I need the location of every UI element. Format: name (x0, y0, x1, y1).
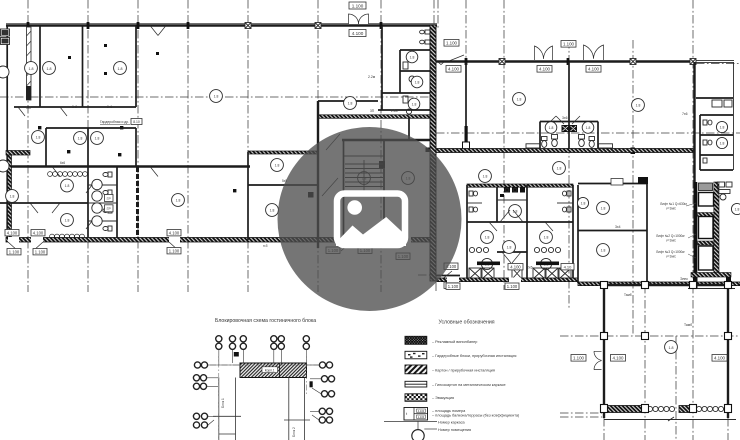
svg-text:4.100: 4.100 (418, 409, 425, 413)
svg-text:3П: 3П (370, 109, 375, 113)
svg-text:4.100: 4.100 (539, 67, 551, 72)
svg-text:4.100: 4.100 (510, 265, 521, 270)
svg-text:1.8: 1.8 (78, 136, 83, 140)
svg-text:1.8: 1.8 (10, 194, 15, 198)
svg-text:4.100: 4.100 (169, 231, 180, 236)
svg-text:– Гипсокартон на металлическом: – Гипсокартон на металлическом каркасе (432, 383, 506, 387)
svg-text:– площадь номера: – площадь номера (432, 409, 466, 413)
svg-text:н.б: н.б (263, 244, 268, 248)
svg-text:1.8: 1.8 (483, 174, 488, 178)
svg-text:1.8: 1.8 (636, 103, 641, 107)
svg-text:1.8: 1.8 (735, 207, 740, 211)
svg-text:1.100: 1.100 (9, 250, 20, 255)
svg-text:1.100: 1.100 (448, 284, 459, 289)
svg-text:4.100: 4.100 (352, 31, 364, 36)
svg-text:Блок 2: Блок 2 (292, 427, 296, 437)
svg-text:Тамб: Тамб (684, 323, 692, 327)
svg-text:1.8: 1.8 (214, 94, 219, 98)
svg-text:Условные обозначения: Условные обозначения (439, 320, 495, 326)
svg-text:– площадь балкона/террасы (без: – площадь балкона/террасы (без коэффицие… (432, 414, 520, 418)
svg-text:1.8: 1.8 (36, 135, 41, 139)
svg-text:3х4: 3х4 (615, 225, 621, 229)
svg-text:1.100: 1.100 (352, 3, 364, 8)
svg-text:1.8: 1.8 (544, 235, 549, 239)
svg-text:Номер помещения: Номер помещения (438, 428, 471, 432)
svg-text:1.8: 1.8 (557, 166, 562, 170)
svg-text:– Картон / прирубочная инсталя: – Картон / прирубочная инсталяция (432, 369, 495, 373)
svg-text:Элек: Элек (680, 277, 688, 281)
svg-text:1.100: 1.100 (507, 284, 518, 289)
svg-text:1х2: 1х2 (26, 106, 31, 110)
svg-text:1.8: 1.8 (415, 80, 420, 84)
svg-text:1.100: 1.100 (563, 42, 575, 47)
svg-text:2х6: 2х6 (527, 266, 533, 270)
svg-text:1.8: 1.8 (270, 208, 275, 212)
svg-text:– Рекламный винилбанер: – Рекламный винилбанер (432, 340, 477, 344)
svg-text:Тамб: Тамб (624, 293, 632, 297)
svg-text:1.8: 1.8 (549, 126, 554, 130)
svg-text:1.8: 1.8 (29, 67, 34, 71)
svg-text:4.100: 4.100 (714, 356, 726, 361)
svg-text:1.100: 1.100 (35, 250, 46, 255)
svg-text:1.8: 1.8 (669, 346, 674, 350)
svg-text:Блокировочная схема гостинично: Блокировочная схема гостиничного блока (215, 318, 316, 324)
svg-text:1.8: 1.8 (517, 97, 522, 101)
svg-text:3х6: 3х6 (562, 116, 568, 120)
svg-text:3х6: 3х6 (107, 105, 112, 109)
svg-text:1.100: 1.100 (573, 356, 585, 361)
svg-text:7х6: 7х6 (682, 112, 688, 116)
svg-text:Гардеробная и др.: Гардеробная и др. (100, 120, 129, 124)
svg-text:1.8: 1.8 (485, 235, 490, 239)
svg-text:4.100: 4.100 (448, 67, 460, 72)
svg-text:Лифт №1 Q=630кг: Лифт №1 Q=630кг (660, 202, 688, 206)
svg-text:v=1м/с: v=1м/с (666, 239, 676, 243)
svg-text:2.2м: 2.2м (368, 75, 376, 79)
svg-text:Корп.1: Корп.1 (265, 368, 275, 372)
svg-text:1.8: 1.8 (412, 102, 417, 106)
svg-text:1.8: 1.8 (65, 184, 70, 188)
svg-text:1.8: 1.8 (507, 245, 512, 249)
svg-text:1.8: 1.8 (586, 126, 591, 130)
svg-text:1.100: 1.100 (169, 249, 180, 254)
svg-text:1.8: 1.8 (581, 201, 586, 205)
svg-text:1.8: 1.8 (601, 248, 606, 252)
svg-text:1.100: 1.100 (446, 41, 458, 46)
svg-text:1.8: 1.8 (65, 218, 70, 222)
svg-text:Лифт №2 Q=1000кг: Лифт №2 Q=1000кг (656, 234, 686, 238)
svg-text:6х6: 6х6 (60, 161, 65, 165)
svg-text:8.10: 8.10 (133, 120, 140, 124)
svg-text:1.8: 1.8 (720, 141, 725, 145)
svg-text:1.8: 1.8 (410, 55, 415, 59)
svg-text:v=1м/с: v=1м/с (666, 207, 676, 211)
svg-text:ГР: ГР (107, 207, 112, 211)
svg-text:4.100: 4.100 (588, 67, 600, 72)
svg-text:1.8: 1.8 (95, 136, 100, 140)
svg-text:1.8: 1.8 (720, 125, 725, 129)
svg-text:– Эвакуация: – Эвакуация (432, 396, 454, 400)
svg-text:Блок 1: Блок 1 (221, 398, 225, 408)
svg-text:– Гардеробные блоки, прирубочн: – Гардеробные блоки, прирубочная инсталя… (432, 354, 516, 358)
svg-text:2.2м: 2.2м (391, 109, 398, 113)
svg-text:Лифт №3 Q=1000кг: Лифт №3 Q=1000кг (656, 250, 686, 254)
svg-text:1.8: 1.8 (47, 67, 52, 71)
svg-text:v=1м/с: v=1м/с (666, 255, 676, 259)
svg-text:1.8: 1.8 (118, 67, 123, 71)
svg-text:4.100: 4.100 (613, 356, 625, 361)
svg-text:4.100: 4.100 (7, 231, 18, 236)
svg-text:1.8: 1.8 (176, 198, 181, 202)
svg-text:ГР: ГР (107, 197, 112, 201)
svg-text:1.8: 1.8 (275, 163, 280, 167)
svg-text:2х2: 2х2 (72, 105, 77, 109)
svg-text:Номер каркаса: Номер каркаса (438, 420, 465, 424)
svg-text:4.100: 4.100 (33, 231, 44, 236)
svg-text:1.8: 1.8 (601, 206, 606, 210)
svg-text:1.8: 1.8 (348, 101, 353, 105)
svg-text:4.10: 4.10 (564, 265, 573, 270)
svg-text:1.100: 1.100 (418, 415, 425, 419)
